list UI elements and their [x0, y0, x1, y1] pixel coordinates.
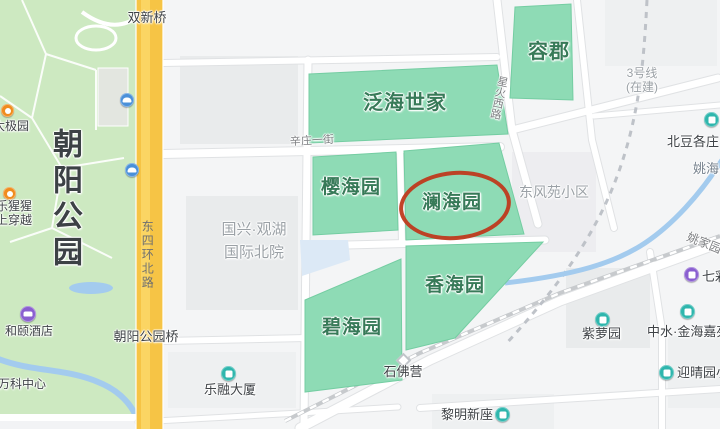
place-label-guoxing-2[interactable]: 国际北院 — [224, 245, 284, 262]
park-pond — [69, 282, 113, 294]
poi-label-canopy-1[interactable]: 乐猩猩 — [0, 200, 32, 213]
residence-icon[interactable] — [680, 304, 695, 319]
poi-label-vanke-center[interactable]: 万科中心 — [0, 378, 46, 391]
office-building-icon[interactable] — [221, 366, 236, 381]
poi-label-taijiyuan[interactable]: 太极园 — [0, 120, 29, 133]
residence-icon[interactable] — [495, 407, 510, 422]
residence-icon[interactable] — [595, 312, 610, 327]
mall-icon[interactable] — [684, 267, 699, 282]
place-label-guoxing-1[interactable]: 国兴·观湖 — [222, 222, 287, 239]
bridge-label-shuangxin: 双新桥 — [127, 11, 166, 25]
poi-label-hotel[interactable]: 和颐酒店 — [5, 325, 53, 338]
place-label-yingqingyuan[interactable]: 迎晴园小 — [677, 366, 720, 380]
bridge-label-chaoyang-park: 朝阳公园桥 — [113, 330, 178, 344]
place-label-beidougezhuang[interactable]: 北豆各庄 — [667, 135, 719, 149]
overpass-icon[interactable] — [120, 93, 134, 107]
ring-road — [136, 0, 163, 429]
compound-label-bihai[interactable]: 碧海园 — [322, 318, 382, 339]
poi-label-canopy-2[interactable]: 上穿越 — [0, 214, 32, 227]
residence-icon[interactable] — [659, 365, 674, 380]
overpass-icon[interactable] — [125, 163, 139, 177]
compound-label-yinghai[interactable]: 樱海园 — [321, 178, 381, 199]
compound-label-fanhai[interactable]: 泛海世家 — [363, 92, 447, 114]
park-label-chaoyang[interactable]: 朝阳公园 — [47, 128, 81, 272]
place-label-zhongshui[interactable]: 中水·金海嘉苑 — [647, 325, 720, 339]
compound-label-xianghai[interactable]: 香海园 — [425, 276, 485, 297]
metro-label-status: (在建) — [626, 81, 658, 94]
place-label-qicai[interactable]: 七彩 — [702, 270, 720, 284]
map-base-layer — [0, 0, 720, 429]
place-label-yaohai[interactable]: 姚海 — [693, 162, 719, 176]
place-label-lerong[interactable]: 乐融大厦 — [204, 383, 256, 397]
attraction-icon[interactable] — [1, 104, 14, 117]
place-label-shifoying[interactable]: 石佛营 — [383, 365, 422, 379]
place-label-liming[interactable]: 黎明新座 — [441, 408, 493, 422]
hotel-icon[interactable] — [20, 306, 36, 322]
place-label-ziluoyuan[interactable]: 紫萝园 — [582, 327, 621, 341]
road-label-dongsihuan: 东四环北路 — [140, 220, 153, 290]
metro-label-line3: 3号线 — [627, 67, 658, 80]
compound-label-rongjun[interactable]: 容郡 — [528, 41, 570, 63]
village-icon[interactable] — [704, 112, 719, 127]
road-label-xinzhuang: 辛庄一街 — [290, 134, 335, 148]
map-canvas[interactable]: 双新桥 太极园 朝阳公园 乐猩猩 上穿越 和颐酒店 万科中心 东四环北路 朝阳公… — [0, 0, 720, 429]
park-south-road — [0, 414, 139, 421]
place-label-dongfengyuan[interactable]: 东风苑小区 — [519, 185, 589, 200]
